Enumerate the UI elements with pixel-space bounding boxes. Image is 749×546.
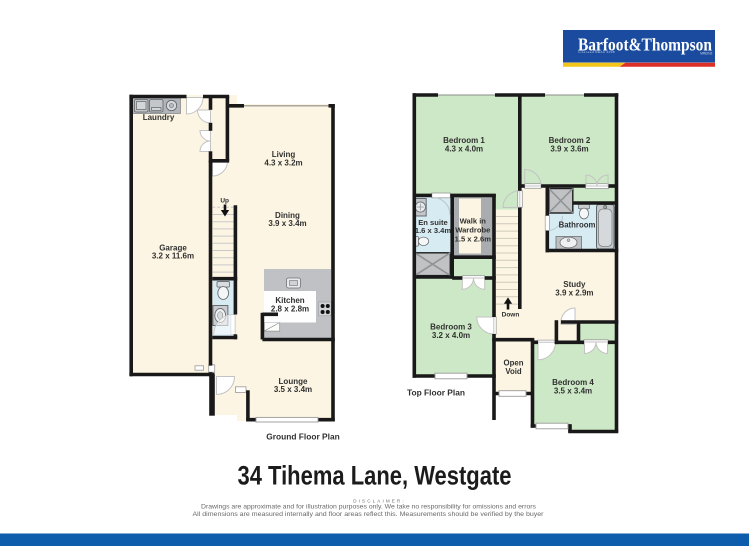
svg-text:Bathroom: Bathroom <box>559 220 596 229</box>
svg-text:Down: Down <box>502 312 520 319</box>
svg-text:Ground Floor Plan: Ground Floor Plan <box>266 431 340 441</box>
svg-text:1.6 x 3.4m: 1.6 x 3.4m <box>415 226 452 235</box>
svg-text:4.3 x 4.0m: 4.3 x 4.0m <box>445 144 483 153</box>
svg-text:1.5 x 2.6m: 1.5 x 2.6m <box>455 235 492 244</box>
svg-text:4.3 x 3.2m: 4.3 x 3.2m <box>264 159 302 168</box>
svg-text:Licensed REAA 2008: Licensed REAA 2008 <box>579 50 615 54</box>
svg-text:34 Tihema Lane, Westgate: 34 Tihema Lane, Westgate <box>238 461 512 491</box>
svg-text:Drawings are approximate and f: Drawings are approximate and for illustr… <box>201 505 536 511</box>
svg-text:Void: Void <box>505 367 522 376</box>
svg-text:Wardrobe: Wardrobe <box>455 226 490 235</box>
svg-text:3.2 x 11.6m: 3.2 x 11.6m <box>152 252 194 261</box>
svg-text:3.5 x 3.4m: 3.5 x 3.4m <box>274 385 312 394</box>
svg-text:3.9 x 3.4m: 3.9 x 3.4m <box>268 219 306 228</box>
svg-text:DISCLAIMER:: DISCLAIMER: <box>353 498 405 503</box>
svg-text:3.2 x 4.0m: 3.2 x 4.0m <box>432 331 470 340</box>
svg-text:Top Floor Plan: Top Floor Plan <box>407 388 465 398</box>
svg-text:3.9 x 3.6m: 3.9 x 3.6m <box>550 144 588 153</box>
svg-text:3.9 x 2.9m: 3.9 x 2.9m <box>555 288 593 297</box>
svg-text:2.8 x 2.8m: 2.8 x 2.8m <box>271 304 309 313</box>
svg-text:All dimensions are measured in: All dimensions are measured internally a… <box>193 512 544 518</box>
svg-text:3.5 x 3.4m: 3.5 x 3.4m <box>554 386 592 395</box>
svg-text:MREINZ: MREINZ <box>700 52 712 56</box>
svg-text:Up: Up <box>220 197 229 204</box>
svg-text:Walk in: Walk in <box>460 216 487 225</box>
svg-text:Laundry: Laundry <box>143 113 175 122</box>
